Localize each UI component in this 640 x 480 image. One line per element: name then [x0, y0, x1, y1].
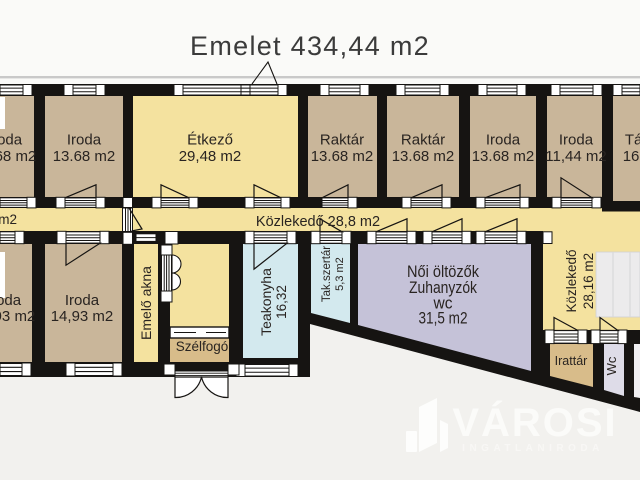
svg-text:Közlekedő: Közlekedő: [564, 249, 579, 312]
svg-text:Emelő akna: Emelő akna: [138, 266, 154, 340]
svg-text:Iroda: Iroda: [0, 292, 22, 309]
svg-text:Tak.szertár: Tak.szertár: [321, 246, 333, 302]
svg-text:31,5 m2: 31,5 m2: [419, 310, 468, 328]
svg-text:16,32: 16,32: [274, 285, 289, 319]
svg-text:14,93 m2: 14,93 m2: [51, 308, 114, 325]
svg-text:Emelet 434,44 m2: Emelet 434,44 m2: [190, 31, 430, 61]
svg-text:Étkező: Étkező: [187, 132, 233, 149]
svg-text:Raktár: Raktár: [320, 132, 364, 149]
svg-text:Teakonyha: Teakonyha: [258, 268, 274, 336]
svg-text:Iroda: Iroda: [0, 132, 23, 149]
svg-text:16,72 m2: 16,72 m2: [623, 148, 640, 165]
svg-text:Raktár: Raktár: [401, 132, 445, 149]
svg-text:VÁROSI: VÁROSI: [452, 400, 617, 445]
svg-text:28,16 m2: 28,16 m2: [581, 253, 596, 309]
svg-text:Irattár: Irattár: [555, 354, 588, 368]
svg-text:29,48 m2: 29,48 m2: [179, 148, 242, 165]
svg-text:5,3 m2: 5,3 m2: [334, 257, 346, 291]
svg-text:Közlekedő 28,8 m2: Közlekedő 28,8 m2: [256, 214, 380, 230]
svg-text:13.68 m2: 13.68 m2: [311, 148, 374, 165]
svg-text:Iroda: Iroda: [486, 132, 521, 149]
svg-text:Szélfogó: Szélfogó: [176, 339, 229, 354]
svg-text:13.68 m2: 13.68 m2: [392, 148, 455, 165]
svg-text:Tárgyaló: Tárgyaló: [625, 132, 640, 149]
svg-text:14,93 m2: 14,93 m2: [0, 308, 35, 325]
svg-text:Wc: Wc: [604, 356, 619, 375]
svg-text:Iroda: Iroda: [65, 292, 100, 309]
svg-text:INGATLANIRODA: INGATLANIRODA: [462, 443, 604, 454]
svg-text:11,44 m2: 11,44 m2: [545, 148, 606, 165]
svg-text:m2: m2: [0, 212, 17, 227]
svg-text:13.68 m2: 13.68 m2: [472, 148, 535, 165]
svg-text:Iroda: Iroda: [559, 132, 594, 149]
svg-text:13.68 m2: 13.68 m2: [0, 148, 36, 165]
svg-text:Iroda: Iroda: [67, 132, 102, 149]
svg-text:13.68 m2: 13.68 m2: [53, 148, 116, 165]
